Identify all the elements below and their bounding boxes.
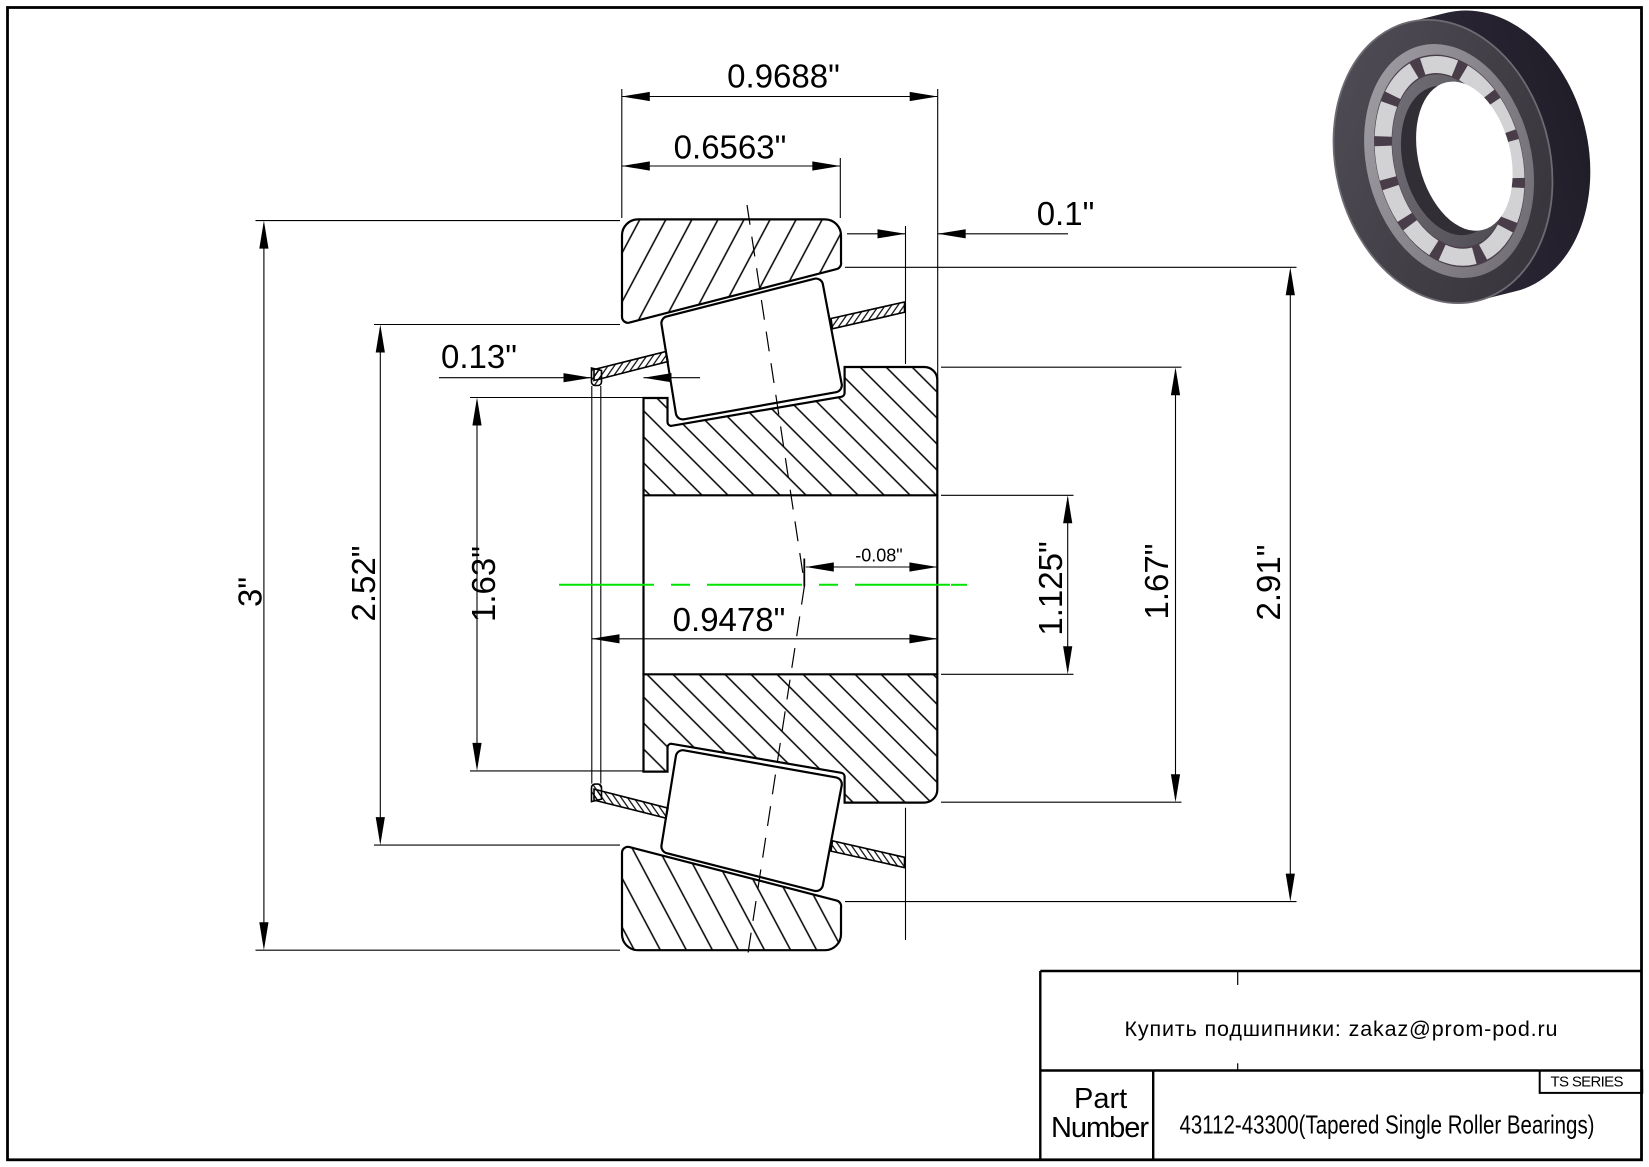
svg-text:Part: Part (1074, 1083, 1127, 1115)
svg-text:TS SERIES: TS SERIES (1551, 1074, 1624, 1091)
svg-text:1.63": 1.63" (465, 546, 502, 622)
svg-text:1.67": 1.67" (1138, 544, 1175, 620)
svg-text:-0.08": -0.08" (855, 546, 902, 566)
svg-text:1.125": 1.125" (1032, 541, 1069, 635)
svg-text:3": 3" (232, 577, 269, 607)
svg-text:0.9688": 0.9688" (727, 58, 840, 95)
svg-text:43112-43300(Tapered Single Rol: 43112-43300(Tapered Single Roller Bearin… (1180, 1110, 1595, 1140)
svg-text:Купить подшипники: zakaz@prom-: Купить подшипники: zakaz@prom-pod.ru (1125, 1017, 1558, 1041)
svg-text:Number: Number (1051, 1112, 1149, 1144)
svg-text:0.9478": 0.9478" (673, 601, 786, 638)
svg-text:0.6563": 0.6563" (674, 129, 787, 166)
svg-text:0.1": 0.1" (1037, 195, 1095, 232)
svg-text:2.91": 2.91" (1250, 545, 1287, 621)
svg-text:0.13": 0.13" (441, 338, 517, 375)
svg-text:2.52": 2.52" (345, 546, 382, 622)
